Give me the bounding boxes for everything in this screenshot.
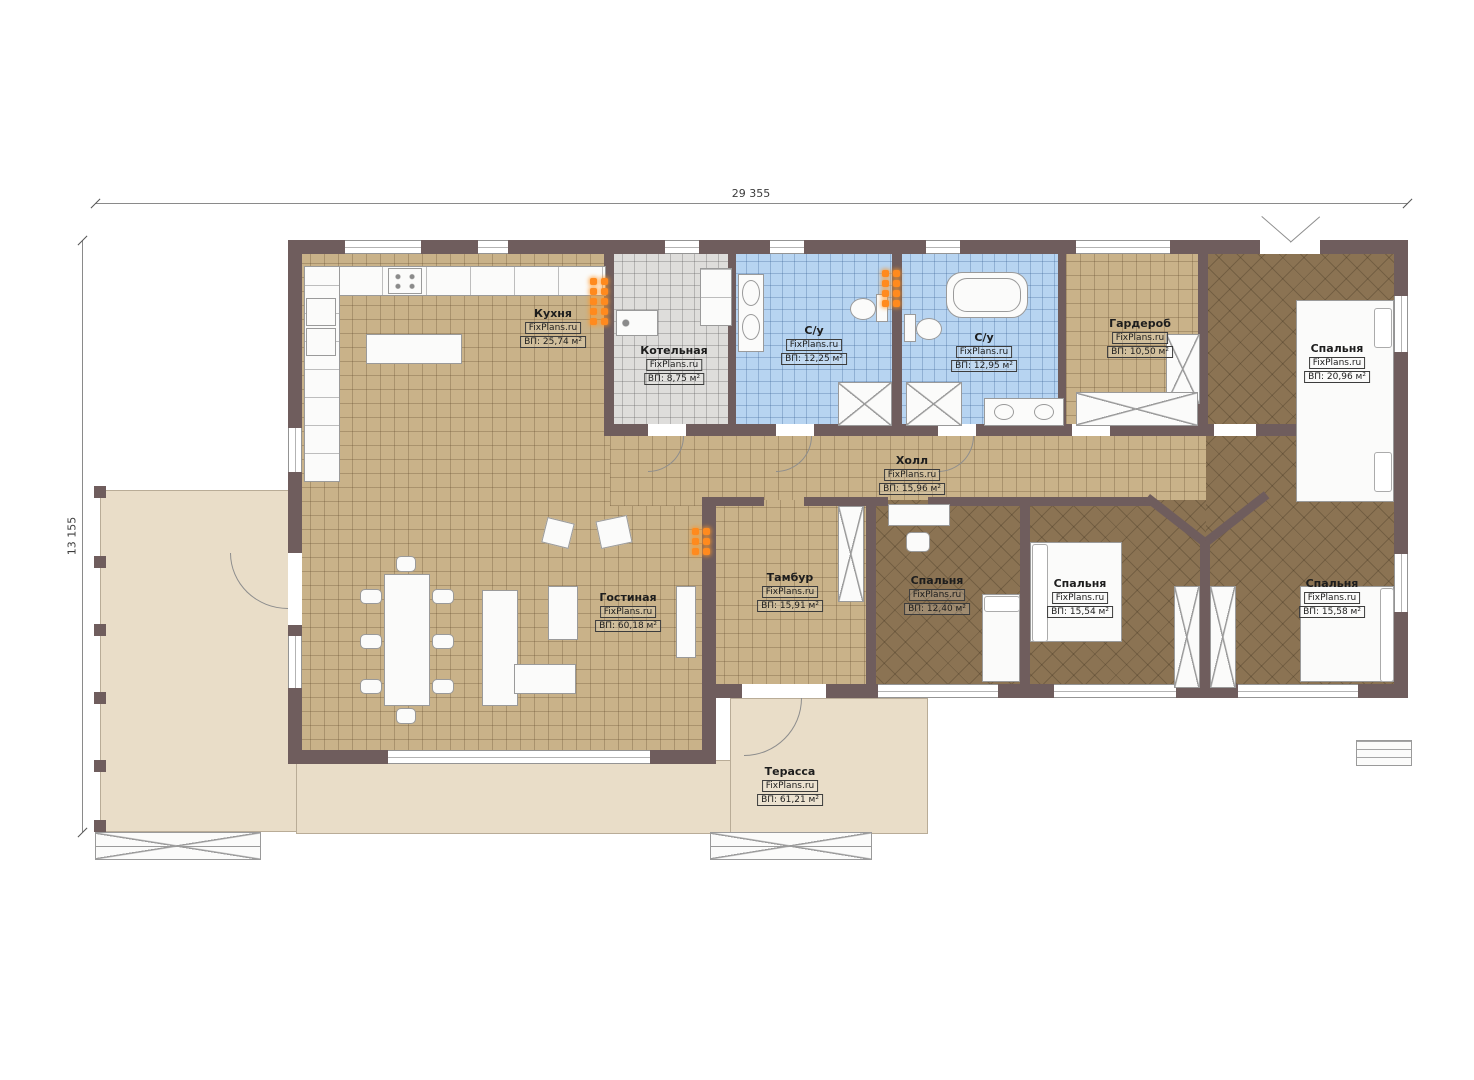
coffee-table bbox=[548, 586, 578, 640]
radiator-icon bbox=[590, 278, 608, 325]
room-area: ВП: 12,95 м² bbox=[951, 360, 1017, 372]
room-watermark: FixPlans.ru bbox=[525, 322, 581, 334]
sink bbox=[994, 404, 1014, 420]
chair bbox=[906, 532, 930, 552]
window-living-large bbox=[388, 750, 650, 764]
room-area: ВП: 10,50 м² bbox=[1107, 346, 1173, 358]
room-watermark: FixPlans.ru bbox=[762, 780, 818, 792]
steps-right bbox=[1356, 740, 1412, 766]
room-name: Спальня bbox=[904, 575, 970, 587]
room-label-bedroom-center: Спальня FixPlans.ru ВП: 15,54 м² bbox=[1047, 578, 1113, 618]
room-area: ВП: 12,40 м² bbox=[904, 603, 970, 615]
entrance-door-leaf bbox=[1290, 216, 1320, 242]
terrace-post bbox=[94, 624, 106, 636]
kitchen-island bbox=[366, 334, 462, 364]
terrace-post bbox=[94, 556, 106, 568]
tv-stand bbox=[676, 586, 696, 658]
chair bbox=[432, 634, 454, 649]
dimension-line-top bbox=[95, 203, 1408, 204]
wall-hall-bottom-seg bbox=[702, 497, 764, 506]
terrace-post bbox=[94, 820, 106, 832]
room-area: ВП: 60,18 м² bbox=[595, 620, 661, 632]
window bbox=[288, 636, 302, 688]
terrace-post bbox=[94, 760, 106, 772]
room-label-wardrobe: Гардероб FixPlans.ru ВП: 10,50 м² bbox=[1107, 318, 1173, 358]
room-name: Гардероб bbox=[1107, 318, 1173, 330]
radiator-icon bbox=[882, 270, 900, 307]
shower bbox=[906, 382, 962, 426]
steps-bottom-middle bbox=[710, 832, 872, 860]
shower bbox=[838, 382, 892, 426]
wall-bedrooms-mid bbox=[1020, 497, 1030, 689]
appliance bbox=[306, 298, 336, 326]
boiler-unit bbox=[616, 310, 658, 336]
toilet bbox=[916, 318, 942, 340]
window bbox=[1054, 684, 1176, 698]
room-label-bedroom-top-right: Спальня FixPlans.ru ВП: 20,96 м² bbox=[1304, 343, 1370, 383]
room-name: Спальня bbox=[1047, 578, 1113, 590]
window bbox=[1076, 240, 1170, 254]
pillow bbox=[984, 596, 1020, 612]
window bbox=[1394, 554, 1408, 612]
pillow bbox=[1032, 544, 1048, 642]
chair bbox=[360, 589, 382, 604]
room-area: ВП: 15,91 м² bbox=[757, 600, 823, 612]
dimension-height-label: 13 155 bbox=[66, 517, 79, 556]
toilet bbox=[850, 298, 876, 320]
terrace-post bbox=[94, 692, 106, 704]
room-label-hall: Холл FixPlans.ru ВП: 15,96 м² bbox=[879, 455, 945, 495]
room-watermark: FixPlans.ru bbox=[786, 339, 842, 351]
wall-top bbox=[288, 240, 1408, 254]
room-watermark: FixPlans.ru bbox=[1304, 592, 1360, 604]
wall-hall-bottom-seg bbox=[1020, 497, 1152, 506]
door-bedroom-top-right bbox=[1214, 424, 1256, 436]
room-name: Терасса bbox=[757, 766, 823, 778]
pillow bbox=[1374, 452, 1392, 492]
room-name: Спальня bbox=[1304, 343, 1370, 355]
step-divider bbox=[96, 846, 260, 847]
room-label-bath1: С/у FixPlans.ru ВП: 12,25 м² bbox=[781, 325, 847, 365]
dimension-line-left bbox=[82, 240, 83, 832]
sink bbox=[1034, 404, 1054, 420]
room-watermark: FixPlans.ru bbox=[1309, 357, 1365, 369]
room-name: Котельная bbox=[640, 345, 707, 357]
chair bbox=[396, 556, 416, 572]
desk bbox=[888, 504, 950, 526]
sofa bbox=[482, 590, 518, 706]
kitchen-counter-top bbox=[338, 266, 606, 296]
dining-table bbox=[384, 574, 430, 706]
room-watermark: FixPlans.ru bbox=[762, 586, 818, 598]
room-name: Гостиная bbox=[595, 592, 661, 604]
room-area: ВП: 15,58 м² bbox=[1299, 606, 1365, 618]
room-watermark: FixPlans.ru bbox=[956, 346, 1012, 358]
bathtub bbox=[946, 272, 1028, 318]
wall-tambur-left bbox=[702, 497, 716, 684]
room-area: ВП: 20,96 м² bbox=[1304, 371, 1370, 383]
window bbox=[878, 684, 998, 698]
pillow bbox=[1374, 308, 1392, 348]
room-area: ВП: 12,25 м² bbox=[781, 353, 847, 365]
terrace-door-left bbox=[288, 553, 302, 625]
room-area: ВП: 15,54 м² bbox=[1047, 606, 1113, 618]
room-label-tambur: Тамбур FixPlans.ru ВП: 15,91 м² bbox=[757, 572, 823, 612]
wall-tambur-right bbox=[866, 497, 876, 689]
closet bbox=[1210, 586, 1236, 688]
chair bbox=[432, 679, 454, 694]
room-name: С/у bbox=[781, 325, 847, 337]
room-name: Холл bbox=[879, 455, 945, 467]
room-label-living: Гостиная FixPlans.ru ВП: 60,18 м² bbox=[595, 592, 661, 632]
window bbox=[926, 240, 960, 254]
room-area: ВП: 25,74 м² bbox=[520, 336, 586, 348]
terrace-left bbox=[100, 490, 298, 832]
utility-cabinet bbox=[700, 268, 732, 326]
room-watermark: FixPlans.ru bbox=[1052, 592, 1108, 604]
chair bbox=[396, 708, 416, 724]
room-watermark: FixPlans.ru bbox=[600, 606, 656, 618]
steps-bottom-left bbox=[95, 832, 261, 860]
room-label-bedroom-bottom-right: Спальня FixPlans.ru ВП: 15,58 м² bbox=[1299, 578, 1365, 618]
wall-bedrooms-right bbox=[1200, 540, 1210, 696]
room-name: Кухня bbox=[520, 308, 586, 320]
chair bbox=[360, 679, 382, 694]
room-watermark: FixPlans.ru bbox=[1112, 332, 1168, 344]
floor-plan: Кухня FixPlans.ru ВП: 25,74 м² Котельная… bbox=[0, 0, 1474, 1080]
room-area: ВП: 8,75 м² bbox=[644, 373, 704, 385]
window bbox=[1394, 296, 1408, 352]
window bbox=[345, 240, 421, 254]
room-label-bedroom-middle: Спальня FixPlans.ru ВП: 12,40 м² bbox=[904, 575, 970, 615]
terrace-door-tambur bbox=[742, 684, 826, 698]
room-name: С/у bbox=[951, 332, 1017, 344]
room-name: Спальня bbox=[1299, 578, 1365, 590]
door-bath1 bbox=[776, 424, 814, 436]
radiator-icon bbox=[692, 528, 710, 555]
window bbox=[665, 240, 699, 254]
sink bbox=[742, 314, 760, 340]
toilet-tank bbox=[904, 314, 916, 342]
terrace-bottom-left bbox=[296, 760, 732, 834]
room-area: ВП: 15,96 м² bbox=[879, 483, 945, 495]
stove bbox=[388, 268, 422, 294]
room-label-bath2: С/у FixPlans.ru ВП: 12,95 м² bbox=[951, 332, 1017, 372]
pillow bbox=[1380, 588, 1394, 682]
room-area: ВП: 61,21 м² bbox=[757, 794, 823, 806]
chair bbox=[360, 634, 382, 649]
step-divider bbox=[711, 846, 871, 847]
room-watermark: FixPlans.ru bbox=[646, 359, 702, 371]
room-watermark: FixPlans.ru bbox=[909, 589, 965, 601]
room-label-boiler: Котельная FixPlans.ru ВП: 8,75 м² bbox=[640, 345, 707, 385]
room-label-kitchen: Кухня FixPlans.ru ВП: 25,74 м² bbox=[520, 308, 586, 348]
wall-connector bbox=[702, 698, 716, 750]
window bbox=[478, 240, 508, 254]
door-boiler bbox=[648, 424, 686, 436]
window bbox=[1238, 684, 1358, 698]
entrance-door-leaf bbox=[1261, 216, 1291, 242]
closet bbox=[1174, 586, 1200, 688]
sofa-section bbox=[514, 664, 576, 694]
room-watermark: FixPlans.ru bbox=[884, 469, 940, 481]
window bbox=[288, 428, 302, 472]
dimension-width-label: 29 355 bbox=[732, 187, 771, 200]
sink bbox=[742, 280, 760, 306]
wardrobe-unit bbox=[1076, 392, 1198, 426]
terrace-post bbox=[94, 486, 106, 498]
bathtub-inner bbox=[953, 278, 1021, 312]
closet bbox=[838, 506, 864, 602]
window bbox=[770, 240, 804, 254]
room-label-terrace: Терасса FixPlans.ru ВП: 61,21 м² bbox=[757, 766, 823, 806]
appliance bbox=[306, 328, 336, 356]
chair bbox=[432, 589, 454, 604]
room-name: Тамбур bbox=[757, 572, 823, 584]
